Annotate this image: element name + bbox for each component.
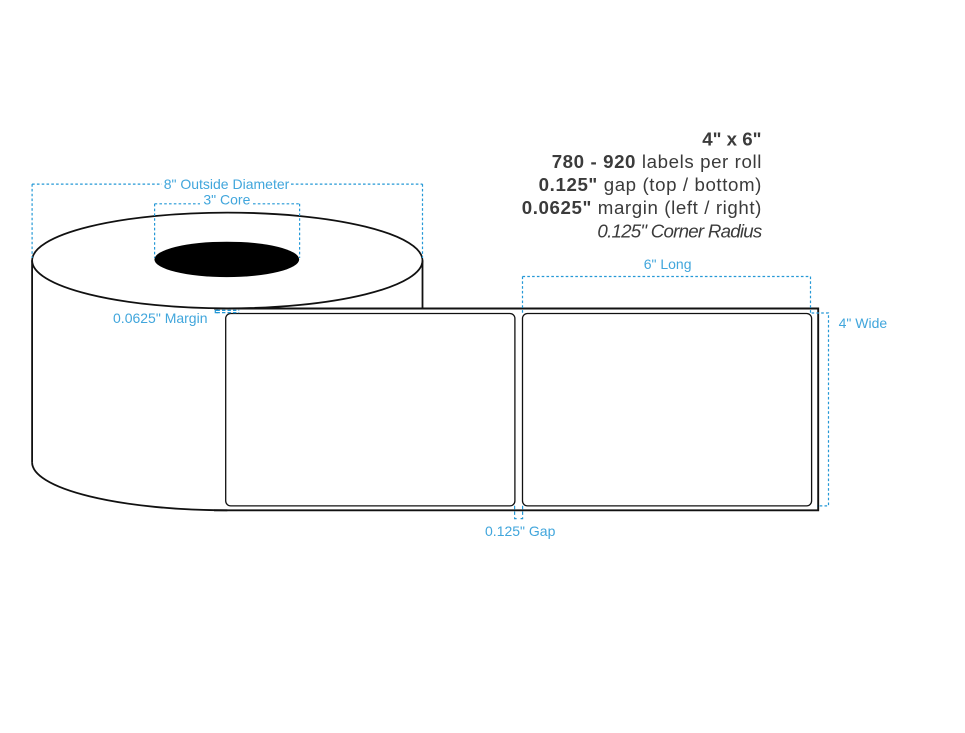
svg-text:0.0625" margin (left / right): 0.0625" margin (left / right) (522, 197, 762, 218)
svg-text:8" Outside Diameter: 8" Outside Diameter (164, 176, 290, 192)
svg-text:4" Wide: 4" Wide (839, 315, 888, 331)
svg-text:4" x 6": 4" x 6" (702, 128, 761, 149)
svg-text:0.125" gap (top / bottom): 0.125" gap (top / bottom) (539, 174, 762, 195)
svg-text:0.0625" Margin: 0.0625" Margin (113, 310, 207, 326)
svg-text:0.125" Corner Radius: 0.125" Corner Radius (597, 220, 761, 241)
svg-text:3" Core: 3" Core (203, 191, 250, 207)
svg-text:780 - 920 labels per roll: 780 - 920 labels per roll (552, 151, 762, 172)
svg-text:6" Long: 6" Long (644, 256, 692, 272)
svg-text:0.125" Gap: 0.125" Gap (485, 523, 556, 539)
